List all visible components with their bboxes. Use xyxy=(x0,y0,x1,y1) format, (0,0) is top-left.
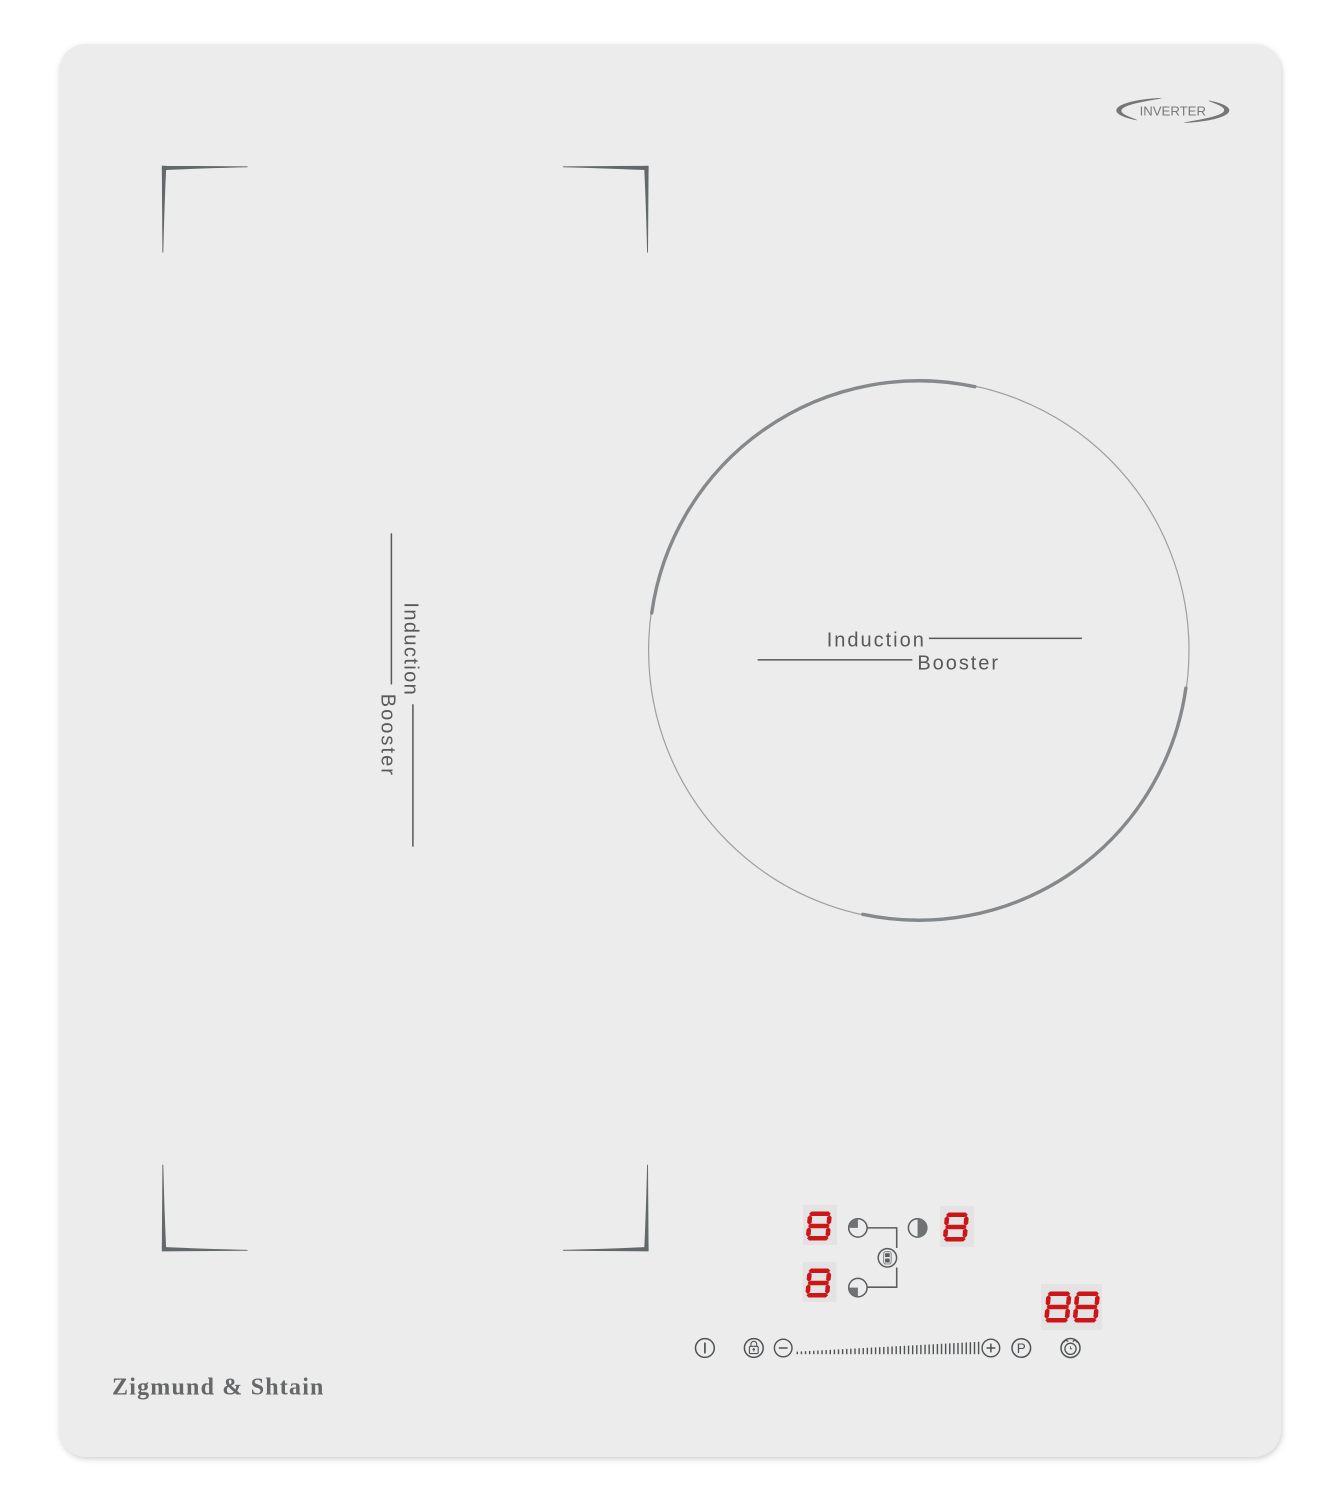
svg-text:Induction: Induction xyxy=(399,602,421,696)
svg-text:Induction: Induction xyxy=(827,630,926,652)
svg-text:Booster: Booster xyxy=(917,653,1000,675)
svg-text:Zigmund & Shtain: Zigmund & Shtain xyxy=(112,1375,325,1401)
svg-text:INVERTER: INVERTER xyxy=(1140,103,1206,118)
svg-text:Booster: Booster xyxy=(377,694,399,777)
svg-text:P: P xyxy=(1017,1341,1026,1356)
